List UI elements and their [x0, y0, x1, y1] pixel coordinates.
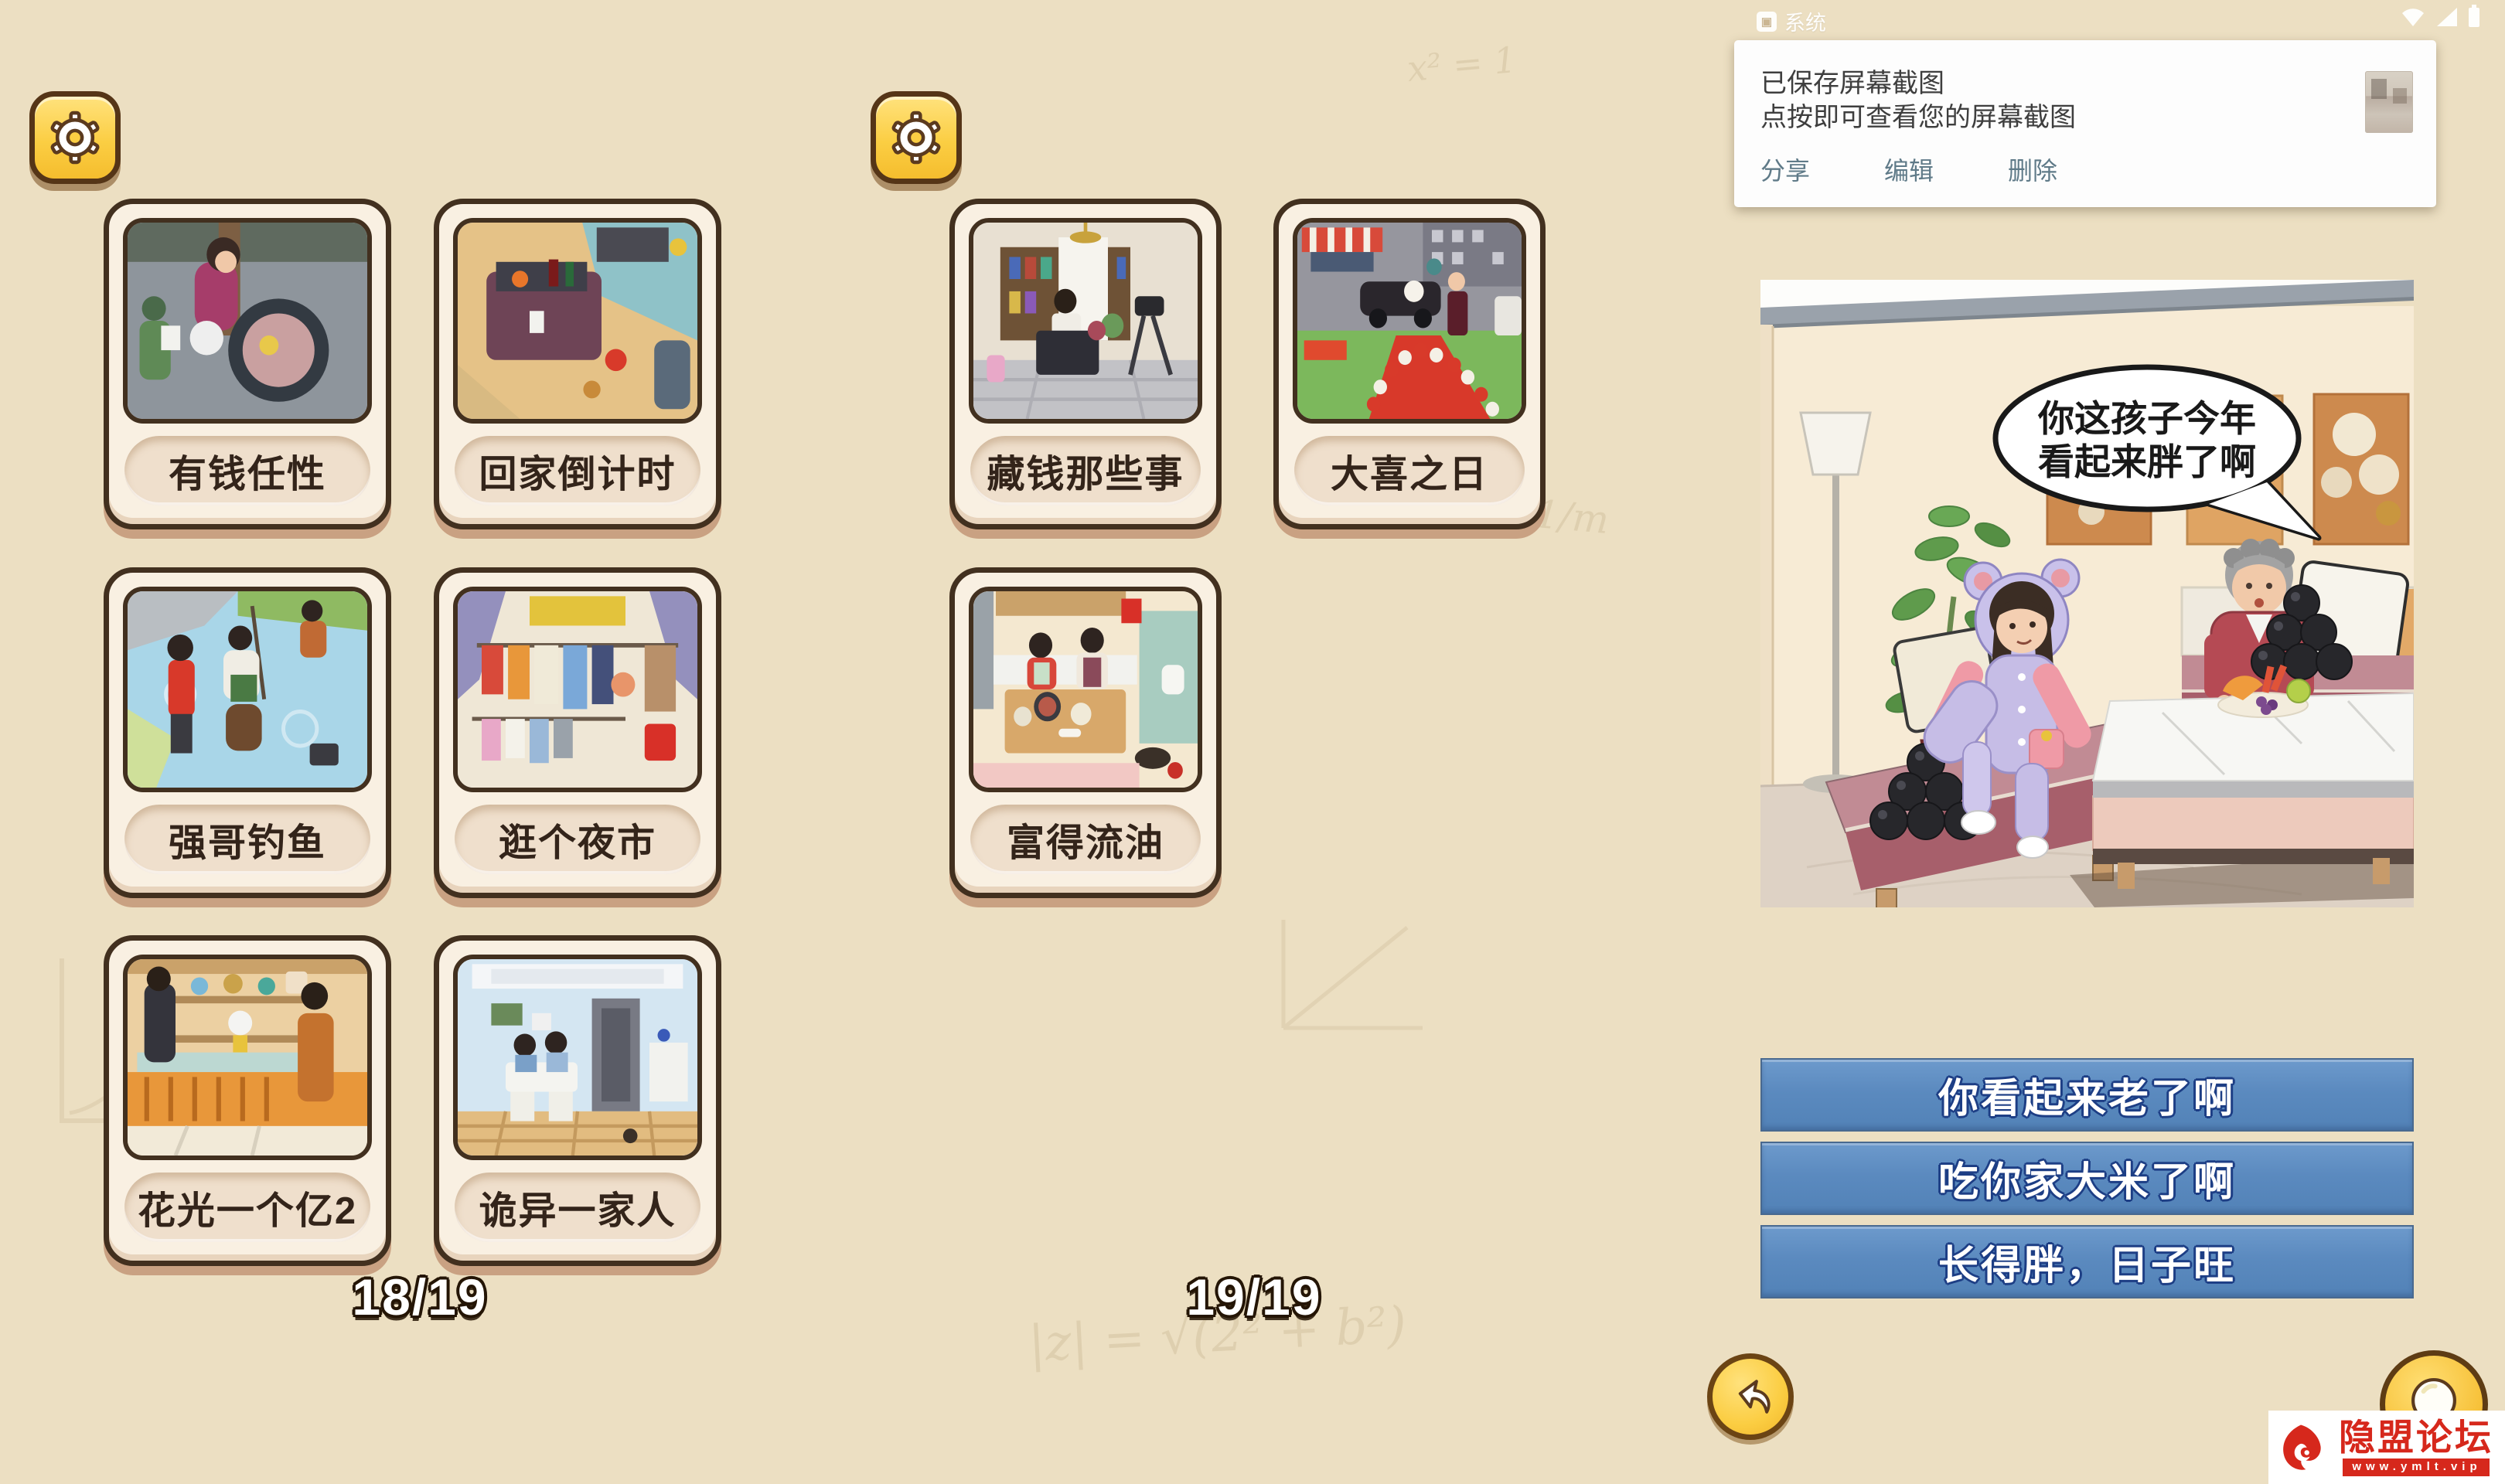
back-arrow-icon	[1725, 1371, 1776, 1422]
gear-icon	[46, 108, 104, 167]
level-card-label: 大喜之日	[1294, 436, 1525, 505]
answer-option-label: 吃你家大米了啊	[1938, 1149, 2236, 1207]
notification-icon: ▣	[1757, 12, 1777, 32]
level-thumbnail	[453, 955, 702, 1160]
level-card-label: 花光一个亿2	[124, 1173, 370, 1242]
level-card[interactable]: 强哥钓鱼	[104, 567, 391, 898]
statusbar-app: ▣ 系统	[1757, 6, 1826, 36]
level-thumbnail	[453, 587, 702, 792]
level-thumbnail	[123, 955, 372, 1160]
level-card[interactable]: 有钱任性	[104, 199, 391, 529]
level-card-label: 诡异一家人	[455, 1173, 700, 1242]
watermark: 隐盟论坛 www.ymlt.vip	[2268, 1411, 2505, 1484]
level-name: 大喜之日	[1331, 444, 1488, 499]
level-name: 逛个夜市	[499, 812, 656, 867]
level-thumbnail	[1293, 218, 1526, 424]
screenshot-thumbnail	[2365, 71, 2413, 133]
level-thumbnail	[123, 218, 372, 424]
level-thumbnail	[453, 218, 702, 424]
speech-bubble-line1: 你这孩子今年	[2037, 398, 2256, 439]
answer-option-1[interactable]: 你看起来老了啊	[1760, 1058, 2414, 1132]
signal-icon	[2435, 6, 2459, 28]
answer-option-2[interactable]: 吃你家大米了啊	[1760, 1142, 2414, 1215]
level-card[interactable]: 诡异一家人	[434, 935, 721, 1266]
page-indicator-1: 18/19	[352, 1268, 487, 1326]
level-name: 花光一个亿2	[138, 1180, 357, 1235]
share-button[interactable]: 分享	[1760, 151, 1810, 187]
answer-option-3[interactable]: 长得胖，日子旺	[1760, 1225, 2414, 1298]
level-card-label: 有钱任性	[124, 436, 370, 505]
page-indicator-2: 19/19	[1186, 1268, 1321, 1326]
level-thumbnail	[969, 587, 1202, 792]
notification-subtitle: 点按即可查看您的屏幕截图	[1760, 100, 2415, 134]
delete-button[interactable]: 删除	[2008, 151, 2057, 187]
statusbar-app-label: 系统	[1784, 6, 1826, 36]
level-card[interactable]: 富得流油	[949, 567, 1222, 898]
speech-bubble-line2: 看起来胖了啊	[2038, 441, 2256, 482]
level-thumbnail	[123, 587, 372, 792]
level-name: 回家倒计时	[479, 444, 676, 499]
level-card-label: 藏钱那些事	[970, 436, 1201, 505]
level-card-label: 强哥钓鱼	[124, 805, 370, 874]
level-card[interactable]: 花光一个亿2	[104, 935, 391, 1266]
battery-icon	[2468, 5, 2480, 28]
wifi-icon	[2400, 6, 2426, 28]
level-name: 有钱任性	[169, 444, 326, 499]
level-card[interactable]: 逛个夜市	[434, 567, 721, 898]
level-name: 藏钱那些事	[987, 444, 1184, 499]
gear-icon	[887, 108, 946, 167]
answer-option-label: 长得胖，日子旺	[1938, 1233, 2236, 1291]
level-name: 富得流油	[1007, 812, 1164, 867]
level-card[interactable]: 藏钱那些事	[949, 199, 1222, 529]
settings-button-page2[interactable]	[871, 91, 962, 184]
edit-button[interactable]: 编辑	[1884, 151, 1934, 187]
level-name: 强哥钓鱼	[169, 812, 326, 867]
level-card[interactable]: 回家倒计时	[434, 199, 721, 529]
watermark-flame-logo	[2276, 1422, 2326, 1473]
answer-option-label: 你看起来老了啊	[1938, 1066, 2236, 1124]
settings-button-page1[interactable]	[29, 91, 121, 184]
level-card-label: 富得流油	[970, 805, 1201, 874]
level-card-label: 逛个夜市	[455, 805, 700, 874]
notification-title: 已保存屏幕截图	[1760, 66, 2415, 100]
screenshot-notification[interactable]: 已保存屏幕截图 点按即可查看您的屏幕截图 分享 编辑 删除	[1734, 40, 2436, 207]
coffee-table	[2070, 693, 2414, 907]
background-doodle-graph	[1276, 912, 1430, 1036]
notification-actions: 分享 编辑 删除	[1760, 151, 2057, 187]
level-card[interactable]: 大喜之日	[1273, 199, 1546, 529]
back-button[interactable]	[1707, 1353, 1794, 1440]
level-name: 诡异一家人	[479, 1180, 676, 1235]
background-doodle: x² = 1	[1406, 39, 1518, 90]
level-card-label: 回家倒计时	[455, 436, 700, 505]
level-thumbnail	[969, 218, 1202, 424]
statusbar-icons	[2400, 5, 2480, 28]
watermark-site-url: www.ymlt.vip	[2343, 1458, 2489, 1476]
watermark-site-name: 隐盟论坛	[2339, 1418, 2493, 1457]
level-scene: 你这孩子今年 看起来胖了啊	[1760, 280, 2414, 907]
